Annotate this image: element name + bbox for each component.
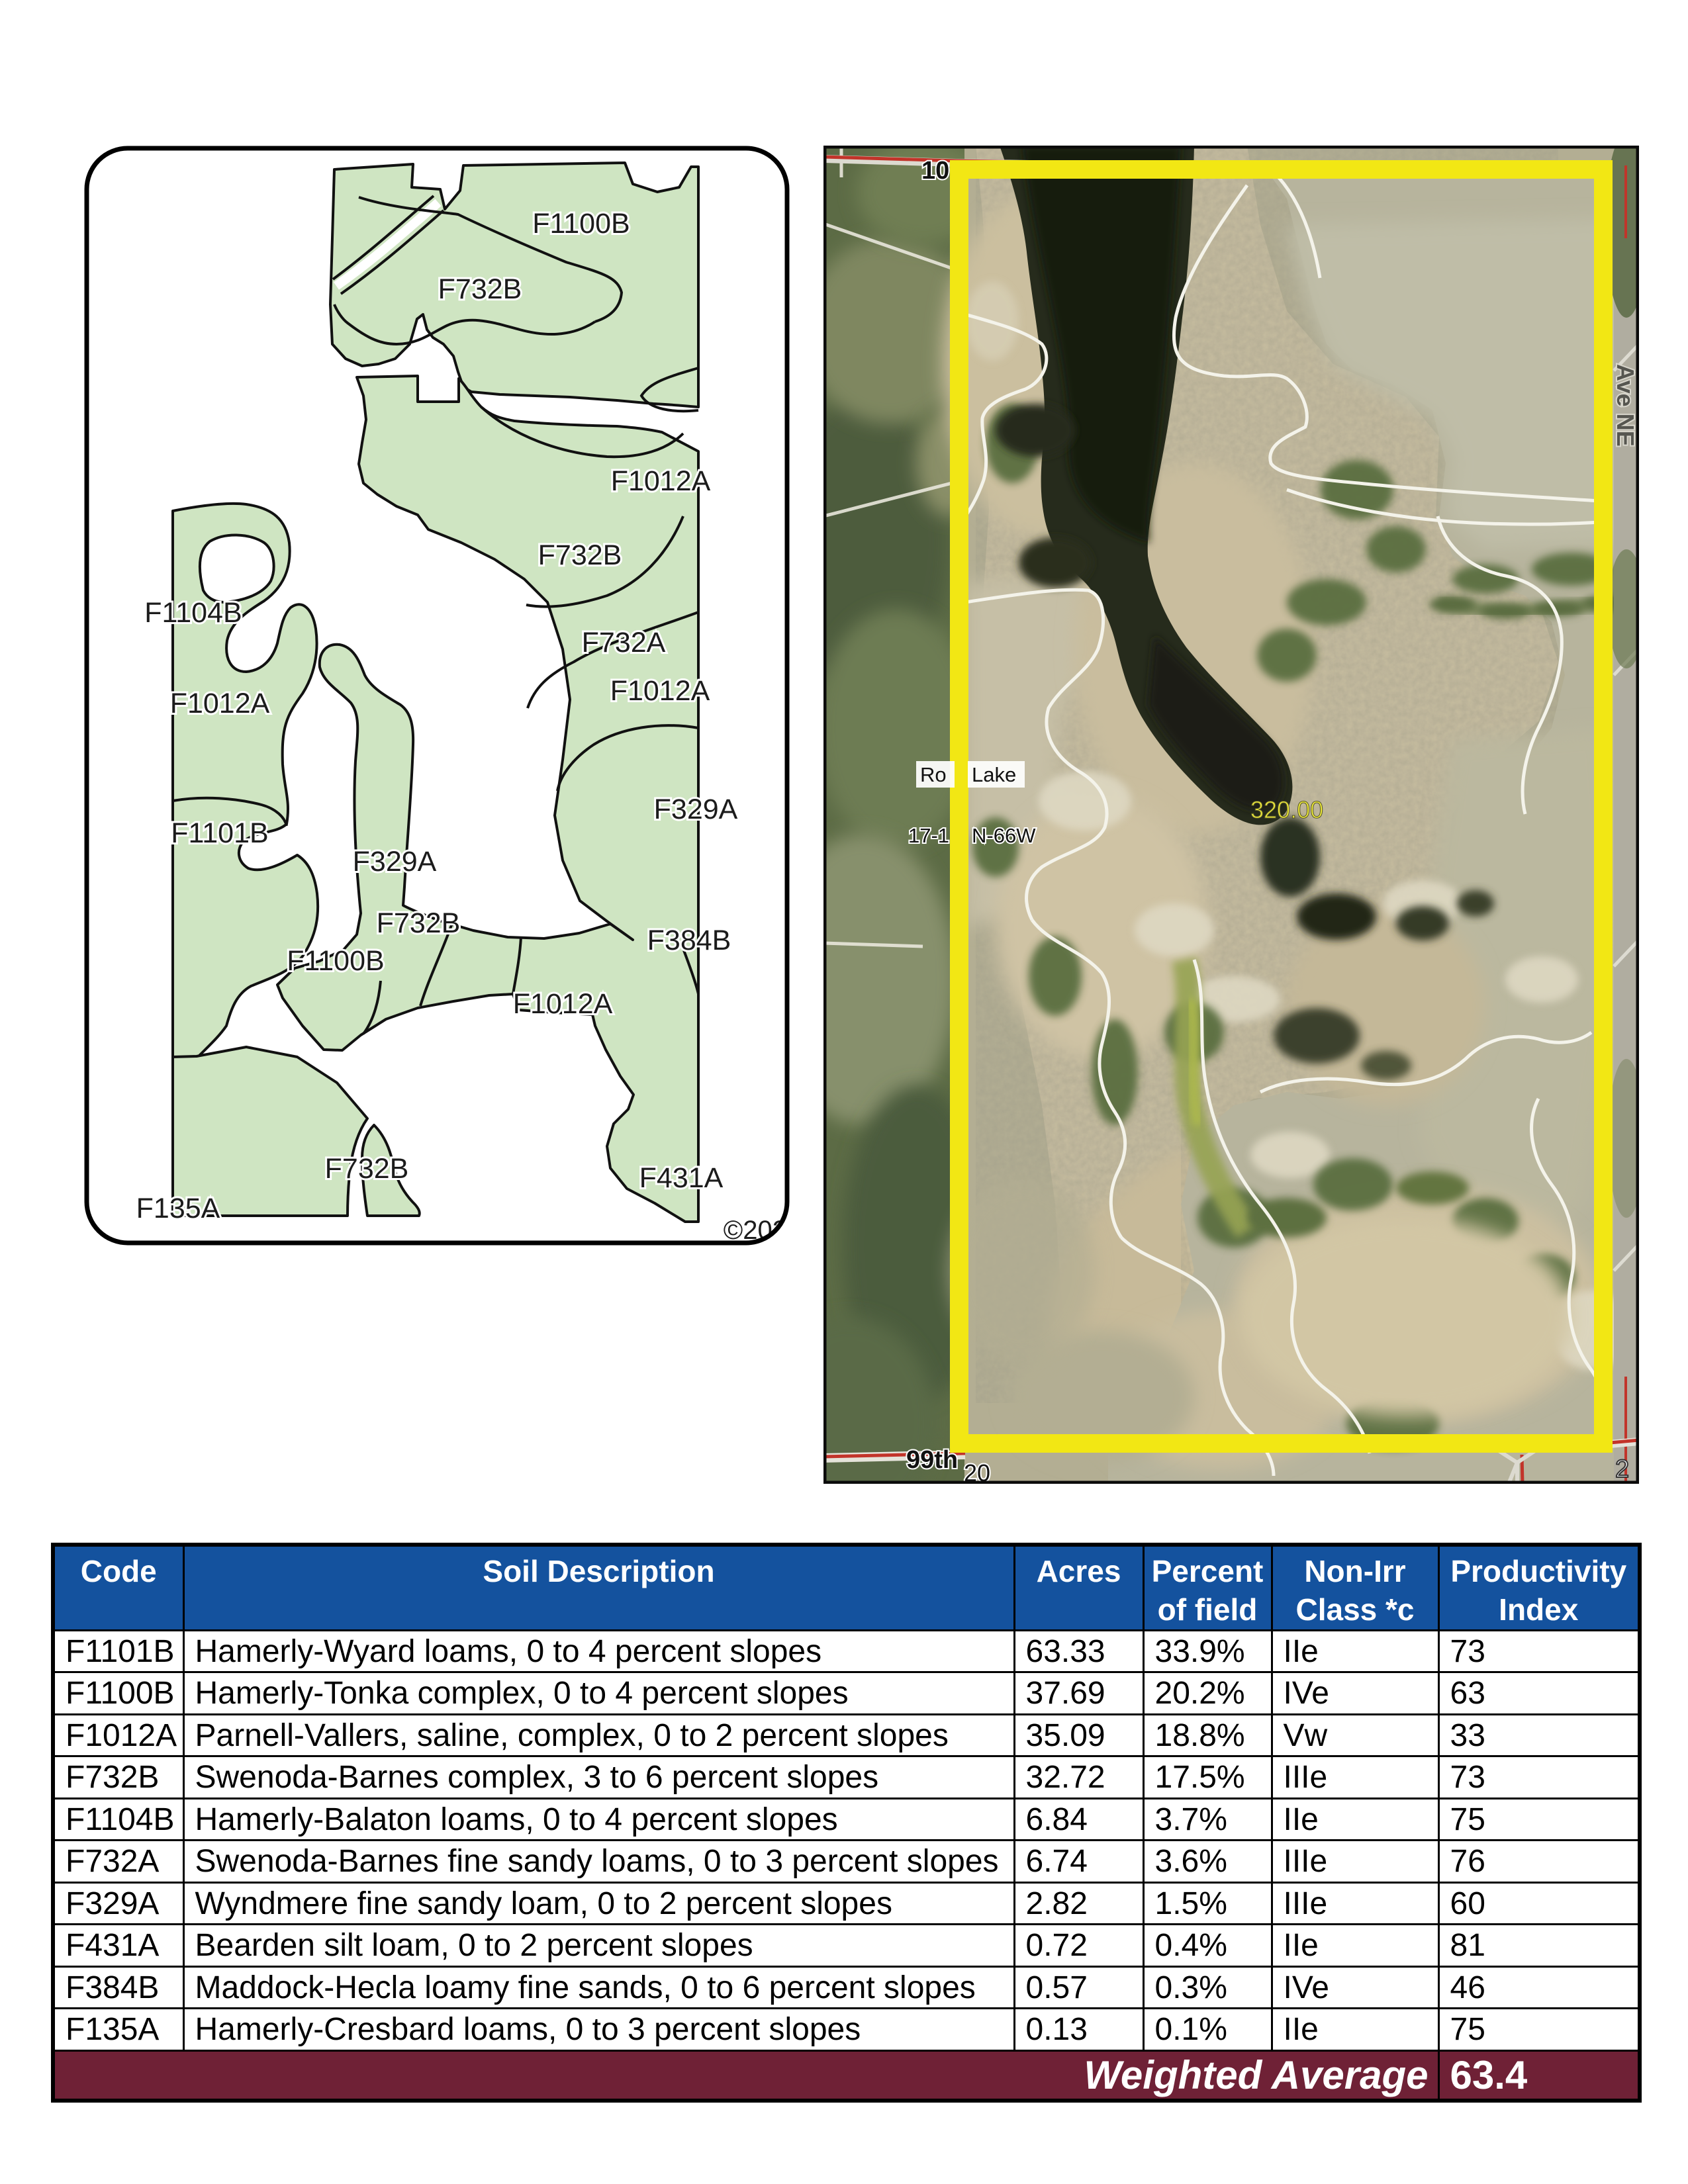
svg-text:F1012A: F1012A [513,988,613,1020]
svg-text:F431A: F431A [639,1162,724,1194]
svg-text:F1100B: F1100B [287,945,384,977]
svg-text:99th: 99th [906,1446,958,1474]
svg-text:17-1: 17-1 [908,824,949,847]
svg-text:F1012A: F1012A [611,465,711,497]
svg-text:20: 20 [964,1459,990,1484]
svg-text:F732B: F732B [538,539,622,571]
svg-text:F732B: F732B [325,1153,409,1185]
svg-text:N-66W: N-66W [972,824,1036,847]
svg-text:Ave NE: Ave NE [1612,364,1639,447]
svg-text:320.00: 320.00 [1250,796,1323,823]
svg-text:F329A: F329A [654,794,738,825]
svg-text:F1012A: F1012A [170,688,270,719]
svg-text:10: 10 [921,157,949,185]
svg-text:Lake: Lake [972,763,1016,786]
svg-text:F1104B: F1104B [144,597,242,629]
svg-text:F329A: F329A [353,846,437,878]
svg-text:F732B: F732B [438,273,522,305]
svg-text:F732A: F732A [582,627,666,659]
svg-text:Ro: Ro [920,763,947,786]
svg-text:F1012A: F1012A [610,675,710,707]
svg-text:2: 2 [1615,1455,1629,1483]
svg-text:F135A: F135A [136,1193,220,1224]
svg-text:F384B: F384B [647,925,731,956]
svg-text:F1101B: F1101B [171,817,268,849]
svg-text:F1100B: F1100B [532,208,630,240]
svg-text:F732B: F732B [377,907,461,939]
